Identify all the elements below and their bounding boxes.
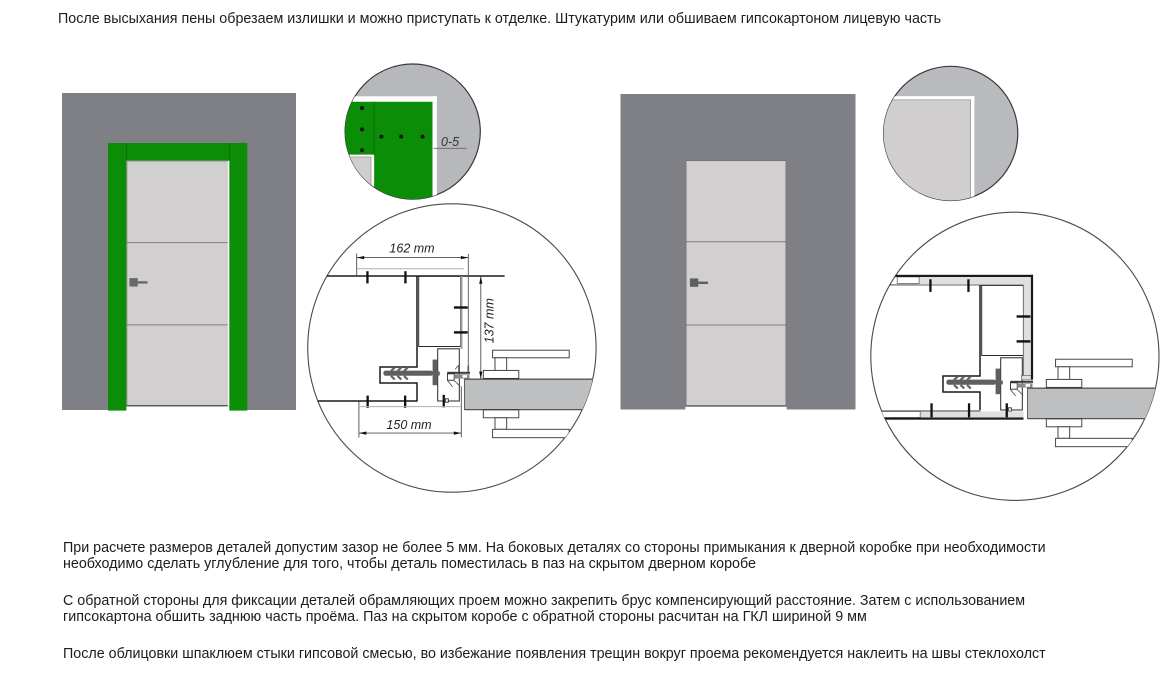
svg-text:137 mm: 137 mm xyxy=(482,298,496,343)
svg-text:0-5: 0-5 xyxy=(441,135,459,149)
svg-text:150 mm: 150 mm xyxy=(386,418,431,432)
svg-text:162 mm: 162 mm xyxy=(389,242,434,256)
